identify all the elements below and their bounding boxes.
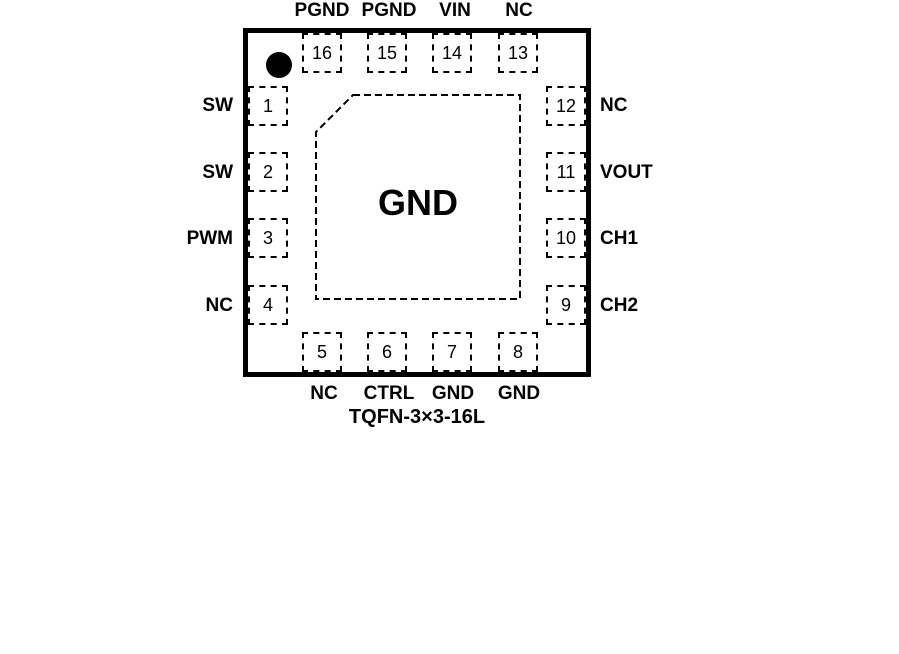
pin-label-12: NC bbox=[600, 95, 710, 117]
pin-pad-1: 1 bbox=[248, 86, 288, 126]
pin-label-2: SW bbox=[130, 162, 233, 184]
pin-pad-11: 11 bbox=[546, 152, 586, 192]
package-title: TQFN-3×3-16L bbox=[292, 405, 542, 429]
center-pad-label: GND bbox=[315, 183, 521, 223]
pin-pad-2: 2 bbox=[248, 152, 288, 192]
pin-pad-16: 16 bbox=[302, 33, 342, 73]
pin-label-3: PWM bbox=[130, 228, 233, 250]
pin-pad-9: 9 bbox=[546, 285, 586, 325]
pin-number-9: 9 bbox=[561, 295, 571, 316]
pin-number-2: 2 bbox=[263, 162, 273, 183]
pin-number-14: 14 bbox=[442, 43, 462, 64]
pin-pad-13: 13 bbox=[498, 33, 538, 73]
pin-label-4: NC bbox=[130, 295, 233, 317]
pin-label-8: GND bbox=[474, 383, 564, 405]
pin-number-12: 12 bbox=[556, 96, 576, 117]
pin-label-9: CH2 bbox=[600, 295, 710, 317]
pinout-diagram: PGND PGND VIN NC SW SW PWM NC NC VOUT CH… bbox=[0, 0, 899, 654]
pin-pad-7: 7 bbox=[432, 332, 472, 372]
pin-pad-15: 15 bbox=[367, 33, 407, 73]
pin-pad-3: 3 bbox=[248, 218, 288, 258]
pin-number-6: 6 bbox=[382, 342, 392, 363]
pin-number-10: 10 bbox=[556, 228, 576, 249]
pin-label-1: SW bbox=[130, 95, 233, 117]
pin-number-11: 11 bbox=[557, 162, 576, 183]
pin-number-13: 13 bbox=[508, 43, 528, 64]
pin-pad-6: 6 bbox=[367, 332, 407, 372]
pin-number-7: 7 bbox=[447, 342, 457, 363]
pin-number-5: 5 bbox=[317, 342, 327, 363]
pin-pad-12: 12 bbox=[546, 86, 586, 126]
pin-label-11: VOUT bbox=[600, 162, 710, 184]
pin-pad-14: 14 bbox=[432, 33, 472, 73]
pin-number-3: 3 bbox=[263, 228, 273, 249]
pin-number-8: 8 bbox=[513, 342, 523, 363]
pin-pad-5: 5 bbox=[302, 332, 342, 372]
pin-number-16: 16 bbox=[312, 43, 332, 64]
pin-number-4: 4 bbox=[263, 295, 273, 316]
pin-label-13: NC bbox=[474, 0, 564, 22]
pin1-indicator-dot bbox=[266, 52, 292, 78]
pin-pad-8: 8 bbox=[498, 332, 538, 372]
pin-number-15: 15 bbox=[377, 43, 397, 64]
pin-number-1: 1 bbox=[263, 96, 273, 117]
pin-label-10: CH1 bbox=[600, 228, 710, 250]
pin-pad-4: 4 bbox=[248, 285, 288, 325]
pin-pad-10: 10 bbox=[546, 218, 586, 258]
